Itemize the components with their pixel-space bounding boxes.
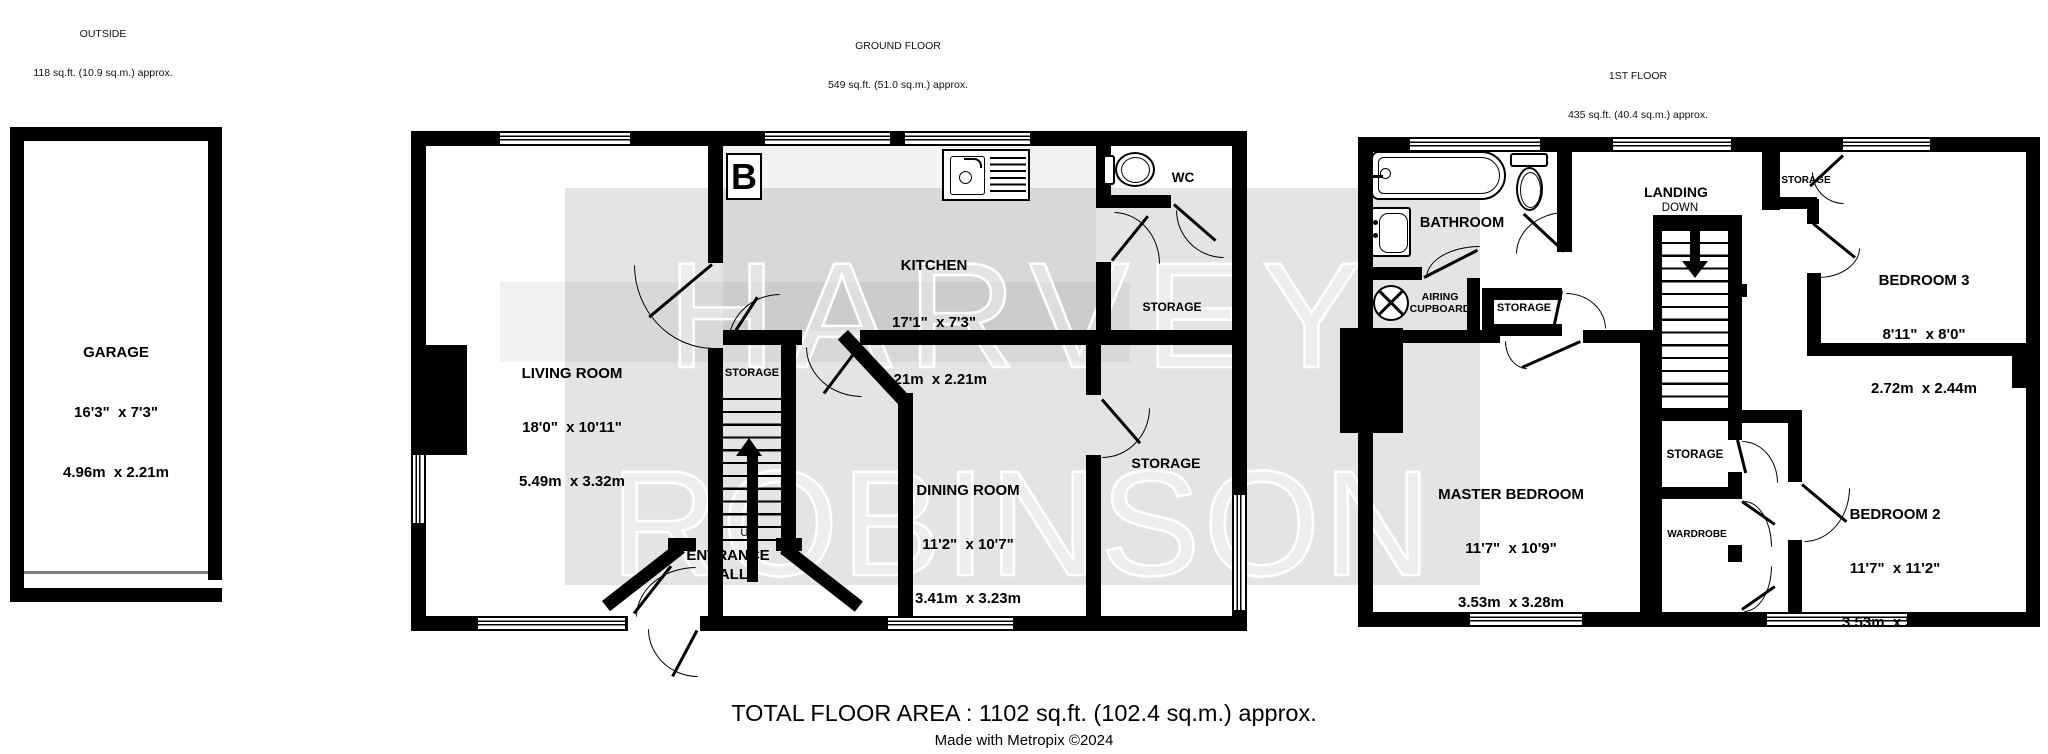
ff-bedroom3-wall-stub — [1807, 199, 1819, 224]
garage-wall-left — [10, 127, 24, 602]
gf-window-top-1 — [500, 131, 630, 146]
boiler-letter: B — [731, 156, 757, 198]
ff-window-top-3 — [1843, 137, 1930, 152]
ff-toilet-bowl-inner — [1520, 172, 1541, 208]
bathtub-inner — [1378, 157, 1500, 194]
ff-corridor-bottom-wall — [1742, 410, 1788, 423]
ground-floor-title-name: GROUND FLOOR — [828, 40, 968, 53]
ff-bedroom3-left-wall — [1807, 273, 1821, 343]
ff-wall-chunk-left — [1340, 328, 1403, 433]
gf-wall-stairs-right — [781, 345, 796, 555]
ff-storage-small-label: STORAGE — [1497, 299, 1551, 317]
ff-bedroom-divider-chunk — [2012, 343, 2040, 388]
ff-storage-small-bottom — [1482, 324, 1562, 336]
understairs-storage-label: STORAGE — [725, 364, 779, 382]
outside-title: OUTSIDE 118 sq.ft. (10.9 sq.m.) approx. — [33, 2, 172, 106]
garage-dims-imperial: 16'3" x 7'3" — [63, 403, 169, 423]
entrance-hall-label: ENTRANCE HALL — [668, 546, 788, 584]
bedroom3-name: BEDROOM 3 — [1871, 272, 1977, 290]
sink-drainer-lines — [990, 157, 1026, 194]
ground-floor-title-area: 549 sq.ft. (51.0 sq.m.) approx. — [828, 79, 968, 92]
bedroom3-dims-imperial: 8'11" x 8'0" — [1871, 326, 1977, 344]
basin-tap-1 — [1373, 220, 1378, 225]
sink-drain-circle — [959, 171, 972, 184]
bathroom-label: BATHROOM — [1420, 214, 1504, 232]
ff-storagetr-label: STORAGE — [1781, 172, 1830, 190]
dining-room-dims-imperial: 11'2" x 10'7" — [915, 536, 1021, 554]
ff-storage-small-door-arc — [1566, 293, 1606, 329]
kitchen-dims-imperial: 17'1" x 7'3" — [881, 313, 987, 332]
sink-faucet — [964, 158, 982, 168]
master-bedroom-door-arc — [1505, 341, 1527, 369]
garage-wall-right — [208, 127, 222, 580]
ff-bedroom2-left-wall-a — [1788, 410, 1802, 482]
dining-room-dims-metric: 3.41m x 3.23m — [915, 590, 1021, 608]
basin-tap-2 — [1373, 233, 1378, 238]
first-floor-title: 1ST FLOOR 435 sq.ft. (40.4 sq.m.) approx… — [1568, 44, 1708, 148]
wc-label: WC — [1172, 169, 1195, 187]
up-label: UP — [740, 524, 755, 542]
gf-window-top-3 — [905, 131, 1030, 146]
basin-inner — [1379, 213, 1408, 253]
kitchen-label: KITCHEN 17'1" x 7'3" 5.21m x 2.21m — [881, 218, 987, 427]
gf-wall-storage-big-b — [1086, 455, 1101, 616]
ff-landing-stub — [1733, 284, 1747, 297]
bedroom3-dims-metric: 2.72m x 2.44m — [1871, 380, 1977, 398]
ff-stairs-arrow-shaft — [1690, 217, 1700, 263]
bedroom2-name: BEDROOM 2 — [1842, 506, 1948, 524]
garage-wall-top — [10, 127, 222, 141]
ff-stairs-left-rail — [1653, 229, 1662, 421]
ff-column-right-stub-a — [1728, 421, 1742, 440]
living-room-label: LIVING ROOM 18'0" x 10'11" 5.49m x 3.32m — [519, 329, 625, 527]
ground-floor-title: GROUND FLOOR 549 sq.ft. (51.0 sq.m.) app… — [828, 14, 968, 118]
dining-room-label: DINING ROOM 11'2" x 10'7" 3.41m x 3.23m — [915, 446, 1021, 644]
bedroom3-label: BEDROOM 3 8'11" x 8'0" 2.72m x 2.44m — [1871, 236, 1977, 434]
wardrobe-label: WARDROBE — [1667, 526, 1726, 544]
ff-column-left-wall-b — [1653, 499, 1662, 612]
bedroom2-dims-metric: 3.53m x 3.40m — [1842, 614, 1948, 632]
floorplan-canvas: HARVEY ROBINSON OUTSIDE 118 sq.ft. (10.9… — [0, 0, 2048, 754]
basin-icon — [1371, 207, 1411, 257]
airing-cupboard-label: AIRING CUPBOARD — [1400, 291, 1480, 315]
ff-storage-column-label: STORAGE — [1667, 446, 1724, 464]
garage-label: GARAGE 16'3" x 7'3" 4.96m x 2.21m — [63, 303, 169, 523]
bedroom2-dims-imperial: 11'7" x 11'2" — [1842, 560, 1948, 578]
outside-title-name: OUTSIDE — [33, 28, 172, 41]
ff-toilet-bowl — [1516, 167, 1543, 211]
ff-column-divider — [1653, 487, 1742, 499]
ff-bedroom2-left-wall-b — [1788, 540, 1802, 612]
master-bedroom-label: MASTER BEDROOM 11'7" x 10'9" 3.53m x 3.2… — [1438, 450, 1584, 648]
ff-wall-bathroom-airing — [1358, 267, 1422, 280]
ff-stairs-arrow-head — [1682, 261, 1708, 278]
gf-wall-storagemid-left — [1096, 262, 1111, 330]
kitchen-sink-icon — [942, 149, 1030, 201]
storage-mid-label: STORAGE — [1142, 298, 1201, 316]
total-floor-area: TOTAL FLOOR AREA : 1102 sq.ft. (102.4 sq… — [0, 700, 2048, 727]
first-floor-title-name: 1ST FLOOR — [1568, 70, 1708, 83]
ff-stairs-bottom-bar — [1653, 408, 1742, 421]
master-bedroom-dims-imperial: 11'7" x 10'9" — [1438, 540, 1584, 558]
gf-wall-storage-big-a — [1086, 345, 1101, 395]
gf-chimney-breast — [411, 345, 467, 455]
garage-door-line — [24, 571, 208, 574]
entrance-door-outer-arc — [648, 629, 698, 677]
wardrobe-door-arc-2 — [1744, 566, 1772, 612]
ff-wall-master-right — [1640, 330, 1654, 612]
ff-column-right-stub-b — [1728, 472, 1742, 487]
master-bedroom-door-leaf — [1521, 340, 1581, 369]
bedroom3-door-arc — [1818, 248, 1860, 278]
metropix-credit: Made with Metropix ©2024 — [0, 732, 2048, 749]
ff-window-top-2 — [1613, 137, 1731, 152]
ff-window-top-1 — [1410, 137, 1540, 152]
garage-name: GARAGE — [63, 343, 169, 363]
ff-wall-master-top-a — [1358, 330, 1500, 343]
ff-stairs-right-rail — [1728, 229, 1742, 421]
outside-title-area: 118 sq.ft. (10.9 sq.m.) approx. — [33, 67, 172, 80]
ff-column-left-wall — [1653, 421, 1662, 487]
gf-window-bottom-1 — [478, 616, 625, 631]
wc-toilet-bowl — [1115, 152, 1155, 187]
ff-wardrobe-right-stub — [1728, 545, 1742, 562]
kitchen-name: KITCHEN — [881, 256, 987, 275]
master-bedroom-dims-metric: 3.53m x 3.28m — [1438, 594, 1584, 612]
garage-dims-metric: 4.96m x 2.21m — [63, 463, 169, 483]
ff-toilet-cistern — [1510, 153, 1548, 167]
bathroom-door-arc — [1516, 212, 1566, 254]
gf-window-right — [1232, 495, 1247, 610]
first-floor-title-area: 435 sq.ft. (40.4 sq.m.) approx. — [1568, 109, 1708, 122]
bathtub-icon — [1371, 151, 1506, 200]
living-room-dims-metric: 5.49m x 3.32m — [519, 473, 625, 491]
bathtub-tap-stub — [1373, 175, 1383, 178]
kitchen-dims-metric: 5.21m x 2.21m — [881, 370, 987, 389]
gf-wall-wc-bottom — [1096, 195, 1171, 208]
down-label: DOWN — [1662, 199, 1698, 217]
ff-storage-column-door-arc — [1742, 441, 1778, 483]
wardrobe-door-arc-1 — [1744, 501, 1772, 547]
gf-stairs-arrow-head — [736, 438, 762, 456]
wc-toilet-bowl-inner — [1121, 157, 1150, 183]
storage-big-label: STORAGE — [1132, 454, 1201, 472]
boiler-box: B — [726, 153, 762, 200]
living-room-name: LIVING ROOM — [519, 365, 625, 383]
dining-room-name: DINING ROOM — [915, 482, 1021, 500]
wc-toilet-cistern — [1103, 155, 1115, 185]
garage-wall-bottom — [10, 588, 222, 602]
gf-window-left — [411, 450, 426, 523]
living-room-dims-imperial: 18'0" x 10'11" — [519, 419, 625, 437]
master-bedroom-name: MASTER BEDROOM — [1438, 486, 1584, 504]
gf-wall-living-a — [708, 146, 723, 263]
bedroom2-label: BEDROOM 2 11'7" x 11'2" 3.53m x 3.40m — [1842, 470, 1948, 668]
gf-window-top-2 — [765, 131, 890, 146]
